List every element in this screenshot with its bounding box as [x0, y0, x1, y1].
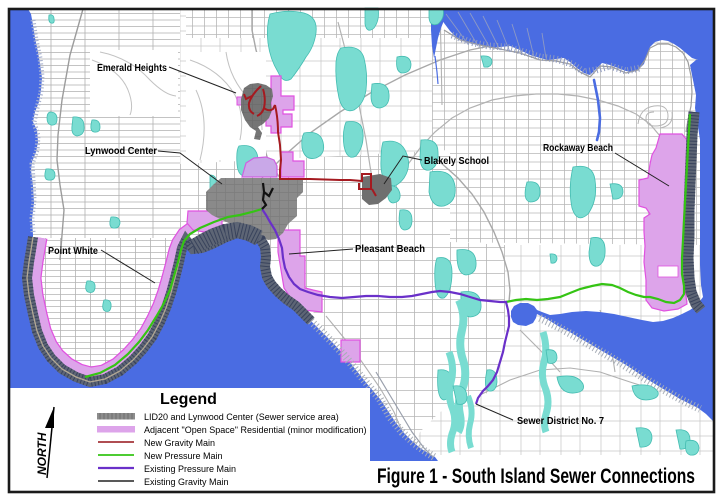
- svg-text:Adjacent "Open Space" Resident: Adjacent "Open Space" Residential (minor…: [144, 425, 367, 435]
- svg-text:Pleasant Beach: Pleasant Beach: [355, 244, 425, 255]
- svg-text:Blakely School: Blakely School: [424, 156, 489, 167]
- svg-text:NORTH: NORTH: [35, 432, 49, 475]
- svg-text:Existing Gravity Main: Existing Gravity Main: [144, 477, 229, 487]
- svg-text:Emerald Heights: Emerald Heights: [97, 63, 167, 74]
- svg-text:Figure 1 - South Island Sewer: Figure 1 - South Island Sewer Connection…: [377, 465, 695, 488]
- svg-text:New Gravity Main: New Gravity Main: [144, 438, 215, 448]
- svg-text:Sewer District No. 7: Sewer District No. 7: [517, 416, 604, 427]
- svg-text:Lynwood Center: Lynwood Center: [85, 146, 157, 157]
- svg-text:New Pressure Main: New Pressure Main: [144, 451, 223, 461]
- svg-text:LID20 and Lynwood Center (Sewe: LID20 and Lynwood Center (Sewer service …: [144, 412, 339, 422]
- svg-text:Existing Pressure Main: Existing Pressure Main: [144, 464, 236, 474]
- svg-text:Legend: Legend: [160, 391, 217, 408]
- svg-text:Point White: Point White: [48, 246, 98, 257]
- svg-text:Rockaway Beach: Rockaway Beach: [543, 143, 613, 154]
